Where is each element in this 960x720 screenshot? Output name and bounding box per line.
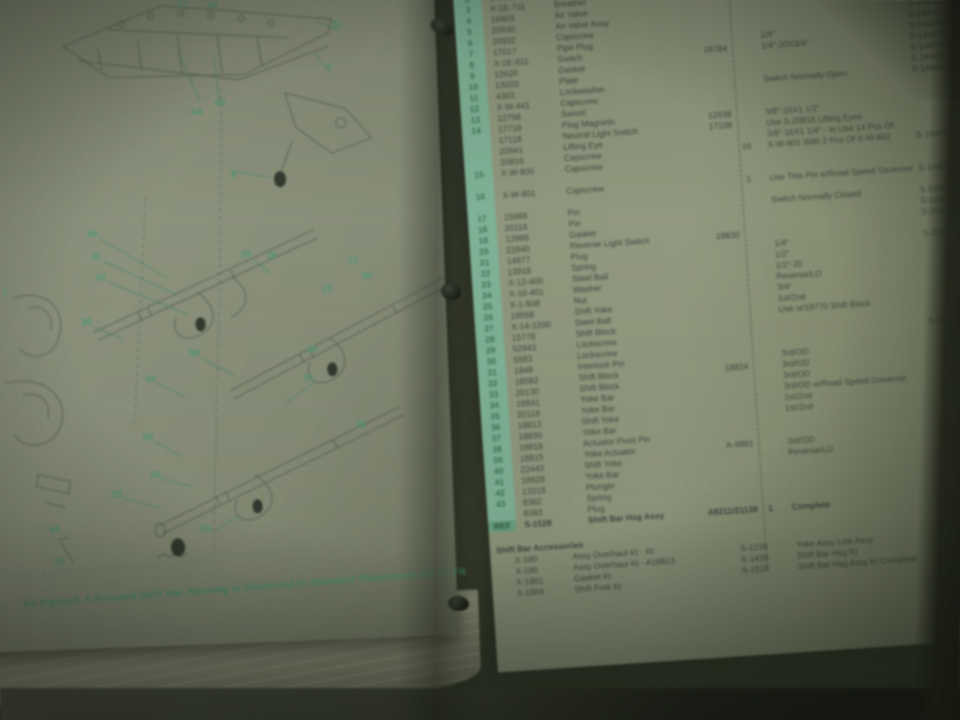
cell-qty: [732, 124, 758, 126]
diagram-callout: 43: [49, 524, 60, 535]
cell-qty: 1: [757, 502, 784, 515]
diagram-callout: 32: [112, 489, 123, 500]
cell-ref: [676, 92, 730, 96]
cell-qty: [729, 69, 755, 71]
cell-part: [495, 202, 567, 207]
cell-qty: [724, 3, 750, 5]
cell-ref: [675, 81, 729, 85]
cell-qty: [726, 36, 752, 38]
cell-ref: [702, 487, 756, 491]
diagram-callout: 27: [322, 284, 333, 295]
cell-ref: [692, 334, 746, 338]
diagram-callout: 31: [303, 373, 314, 384]
cell-qty: [751, 409, 777, 411]
diagram-callout: 25: [200, 524, 211, 535]
cell-ref: [683, 191, 737, 195]
cell-qty: [750, 387, 776, 389]
cell-ref: [697, 411, 751, 415]
diagram-callout: 8: [231, 169, 237, 180]
cell-qty: [740, 244, 766, 246]
cell-qty: [745, 310, 771, 312]
cell-qty: [748, 365, 774, 367]
cell-desc: Shift Fork Kt: [574, 581, 621, 594]
diagram-callout: 11: [332, 19, 342, 30]
cell-ref: [687, 257, 741, 261]
cell-ref: [703, 498, 757, 502]
diagram-callout: 4: [326, 62, 332, 73]
cell-qty: [749, 376, 775, 378]
blur-wrapper: 1212411464638740414220262717363538343031…: [0, 0, 960, 720]
diagram-callout: 24: [207, 0, 218, 11]
cell-ref: [680, 147, 734, 151]
cell-qty: [735, 167, 761, 169]
cell-qty: [727, 47, 753, 49]
diagram-callout: 21: [177, 0, 188, 11]
cell-qty: [757, 497, 783, 499]
cell-qty: [725, 14, 751, 16]
diagram-callout: 41: [90, 252, 101, 263]
cell-ref: [691, 323, 745, 327]
cell-ref: [679, 136, 733, 140]
diagram-callout: 26: [266, 250, 277, 261]
cell-ref: [689, 290, 743, 294]
cell-qty: [740, 233, 766, 235]
cell-qty: [743, 288, 769, 290]
cell-ref: [682, 180, 736, 184]
cell-ref: A8211/21138: [704, 504, 759, 519]
diagram-callout: 33: [150, 469, 161, 480]
cell-qty: [742, 266, 768, 268]
cell-ref: [700, 455, 754, 459]
diagram-callout: 64: [191, 107, 202, 118]
cell-qty: [726, 25, 752, 27]
diagram-callout: 30: [306, 344, 317, 355]
cell-ref: [697, 400, 751, 404]
cell-qty: [756, 486, 782, 488]
diagram-callout: 36: [361, 270, 372, 281]
cell-ref: [675, 70, 729, 74]
cell-qty: [750, 398, 776, 400]
diagram-callout: 35: [81, 317, 92, 328]
cell-ref: [688, 268, 742, 272]
cell-ref: [702, 476, 756, 480]
cell-ref: [670, 5, 724, 9]
cell-ref: [691, 312, 745, 316]
cell-ref: [686, 246, 740, 250]
cell-qty: [729, 80, 755, 82]
cell-ref: [689, 279, 743, 283]
cell-qty: [732, 113, 758, 115]
cell-qty: [748, 354, 774, 356]
cell-qty: [737, 200, 763, 202]
left-page: 1212411464638740414220262717363538343031…: [0, 0, 459, 653]
cell-qty: [753, 442, 779, 444]
cell-ref: [699, 433, 753, 437]
diagram-callout: 42: [95, 272, 106, 283]
diagram-callout: 38: [188, 348, 199, 359]
cell-ref: [698, 422, 752, 426]
cell-qty: [741, 255, 767, 257]
cell-qty: [739, 222, 765, 224]
diagram-callout: 17: [348, 256, 359, 267]
cell-qty: [752, 420, 778, 422]
cell-ref: [672, 26, 726, 30]
cell-ref: [685, 224, 739, 228]
cell-qty: [753, 431, 779, 433]
cell-ref: [681, 158, 735, 162]
cell-qty: [755, 464, 781, 466]
cell-ref: [683, 202, 737, 206]
photo-of-open-parts-manual: 1212411464638740414220262717363538343031…: [0, 0, 960, 720]
cell-qty: [754, 453, 780, 455]
cell-ref: [671, 15, 725, 19]
cell-ref: [681, 169, 735, 173]
diagram-callout: 7: [2, 288, 8, 299]
cell-qty: [728, 58, 754, 60]
cell-ref: [684, 213, 738, 217]
cell-qty: [738, 211, 764, 213]
right-page: Shift Bar HsgA8211/21138 Assy1X-1-110Soc…: [452, 0, 960, 672]
cell-qty: [745, 321, 771, 323]
cell-ref: [696, 389, 750, 393]
cell-qty: [747, 343, 773, 345]
cell-ref: [677, 103, 731, 107]
cell-ref: [701, 465, 755, 469]
exploded-diagram: [0, 0, 459, 653]
cell-qty: [731, 102, 757, 104]
diagram-callout: 63: [215, 98, 226, 109]
cell-qty: [730, 91, 756, 93]
cell-ref: [693, 345, 747, 349]
cell-qty: [737, 189, 763, 191]
cell-ref: [694, 356, 748, 360]
cell-qty: 1: [736, 173, 763, 186]
diagram-callout: 29: [142, 432, 153, 443]
top-right-shadow: [810, 0, 960, 100]
cell-ref: [690, 301, 744, 305]
cell-qty: [742, 277, 768, 279]
diagram-callout: 20: [240, 249, 251, 260]
cell-qty: [733, 134, 759, 136]
cell-qty: [744, 299, 770, 301]
diagram-callout: 34: [145, 374, 156, 385]
diagram-callout: 23: [54, 556, 65, 567]
cell-qty: [746, 332, 772, 334]
diagram-callout: 40: [87, 229, 98, 240]
cell-ref: [695, 378, 749, 382]
callout-leader-lines: [0, 21, 360, 576]
cell-qty: [756, 475, 782, 477]
diagram-callout: 28: [355, 420, 366, 431]
cell-qty: [734, 156, 760, 158]
cell-part: [494, 180, 566, 185]
cell-ref: [674, 59, 728, 63]
cell-item: REF: [488, 520, 517, 533]
cell-qty: 16: [733, 140, 760, 153]
cell-ref: [673, 37, 727, 41]
